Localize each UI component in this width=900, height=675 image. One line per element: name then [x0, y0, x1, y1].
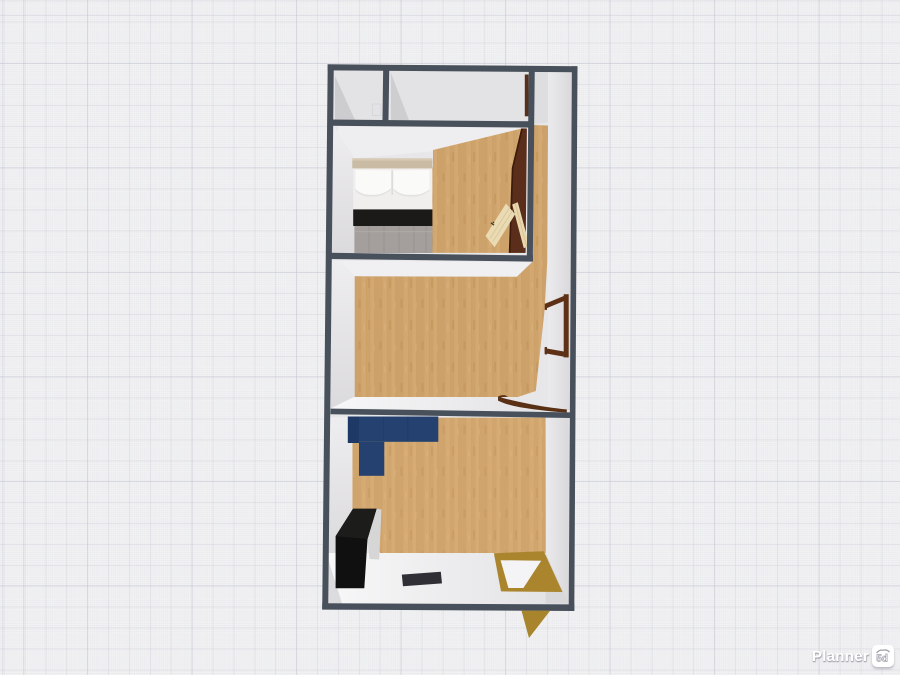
svg-text:5d: 5d	[876, 654, 888, 665]
